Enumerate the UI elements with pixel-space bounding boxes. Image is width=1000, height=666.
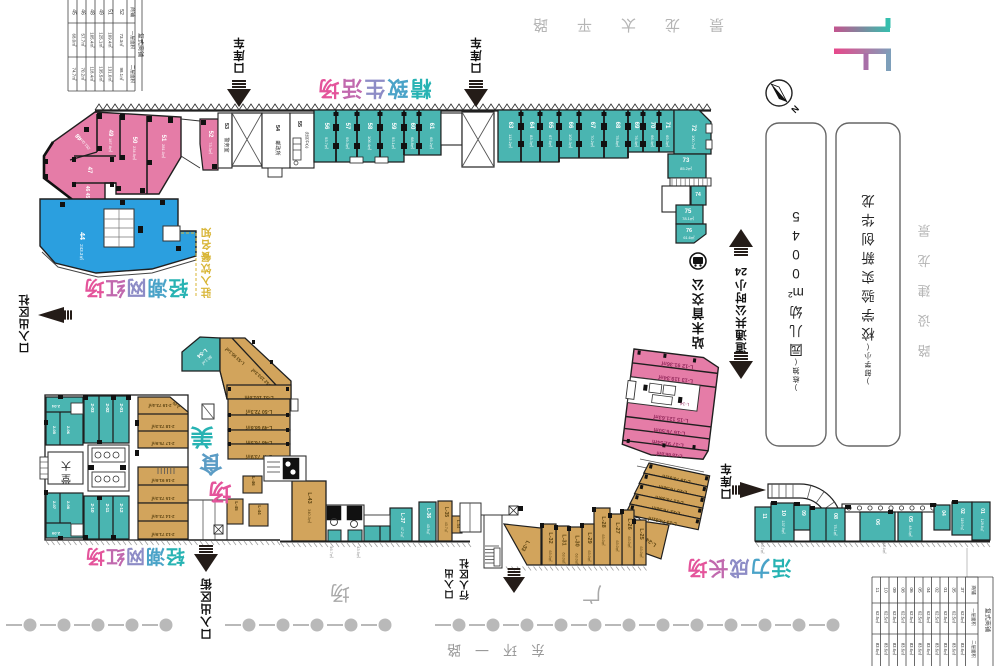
svg-text:49: 49 bbox=[98, 9, 104, 15]
svg-text:49: 49 bbox=[107, 130, 113, 137]
svg-text:45: 45 bbox=[71, 9, 77, 15]
svg-text:50: 50 bbox=[131, 137, 137, 144]
svg-text:83.6㎡: 83.6㎡ bbox=[884, 643, 890, 656]
svg-text:2-07: 2-07 bbox=[52, 501, 57, 510]
svg-text:区: 区 bbox=[19, 305, 30, 318]
svg-text:63: 63 bbox=[507, 122, 513, 129]
svg-text:71: 71 bbox=[664, 122, 670, 129]
svg-text:时: 时 bbox=[735, 291, 747, 305]
svg-text:4: 4 bbox=[792, 228, 800, 243]
svg-text:新: 新 bbox=[861, 250, 875, 265]
svg-text:交: 交 bbox=[691, 292, 704, 307]
svg-text:93.7㎡: 93.7㎡ bbox=[324, 137, 330, 149]
svg-text:62.5㎡: 62.5㎡ bbox=[926, 611, 932, 624]
svg-text:83.6㎡: 83.6㎡ bbox=[943, 643, 949, 656]
svg-text:46 45: 46 45 bbox=[84, 186, 90, 199]
svg-text:独: 独 bbox=[793, 367, 800, 376]
svg-text:轻潮网红场: 轻潮网红场 bbox=[84, 276, 189, 300]
svg-text:出: 出 bbox=[19, 317, 30, 331]
svg-text:L-25: L-25 bbox=[638, 528, 644, 539]
svg-text:2-04: 2-04 bbox=[51, 404, 60, 409]
svg-text:精致生活场: 精致生活场 bbox=[317, 76, 432, 100]
svg-text:37: 37 bbox=[959, 587, 965, 593]
svg-text:验: 验 bbox=[861, 288, 875, 303]
svg-text:公: 公 bbox=[691, 277, 704, 291]
svg-text:83.6㎡: 83.6㎡ bbox=[952, 643, 958, 656]
svg-text:06: 06 bbox=[874, 519, 880, 525]
svg-text:警务室: 警务室 bbox=[223, 137, 230, 152]
svg-text:龙: 龙 bbox=[861, 193, 875, 208]
svg-text:入: 入 bbox=[444, 578, 455, 589]
svg-text:135.5㎡: 135.5㎡ bbox=[99, 66, 105, 82]
svg-text:区: 区 bbox=[200, 590, 212, 603]
svg-text:02: 02 bbox=[934, 587, 940, 593]
svg-text:二层面积: 二层面积 bbox=[970, 640, 977, 658]
svg-text:首: 首 bbox=[691, 306, 704, 321]
svg-text:100.7㎡: 100.7㎡ bbox=[691, 135, 697, 149]
svg-text:54: 54 bbox=[274, 125, 280, 132]
svg-text:车: 车 bbox=[720, 462, 732, 476]
svg-text:L-28: L-28 bbox=[600, 516, 606, 527]
svg-text:70: 70 bbox=[649, 122, 655, 129]
svg-text:73: 73 bbox=[683, 158, 690, 164]
svg-text:63.0㎡: 63.0㎡ bbox=[639, 546, 644, 557]
svg-text:大: 大 bbox=[61, 459, 71, 472]
svg-text:06: 06 bbox=[908, 587, 914, 593]
svg-text:67: 67 bbox=[589, 122, 595, 129]
svg-text:52: 52 bbox=[118, 9, 124, 15]
svg-text:口: 口 bbox=[720, 487, 732, 500]
svg-text:83.6㎡: 83.6㎡ bbox=[918, 643, 924, 656]
svg-text:街: 街 bbox=[200, 577, 213, 591]
svg-text:106.4㎡: 106.4㎡ bbox=[367, 136, 373, 150]
svg-text:74: 74 bbox=[695, 192, 701, 198]
svg-text:43.7㎡: 43.7㎡ bbox=[444, 522, 449, 533]
svg-text:行: 行 bbox=[459, 589, 470, 601]
svg-text:幼: 幼 bbox=[789, 304, 803, 319]
svg-text:98.1㎡: 98.1㎡ bbox=[119, 68, 125, 82]
svg-text:113.2㎡: 113.2㎡ bbox=[508, 134, 514, 148]
svg-text:m²: m² bbox=[788, 285, 804, 300]
svg-text:59: 59 bbox=[390, 123, 396, 130]
svg-text:56: 56 bbox=[323, 123, 329, 130]
svg-text:末: 末 bbox=[691, 321, 705, 336]
svg-text:62.5㎡: 62.5㎡ bbox=[892, 611, 898, 624]
svg-text:68.0㎡: 68.0㎡ bbox=[72, 34, 78, 48]
svg-text:131.0㎡: 131.0㎡ bbox=[108, 66, 114, 82]
svg-text:L-44: L-44 bbox=[257, 505, 262, 515]
svg-text:83.6㎡: 83.6㎡ bbox=[875, 643, 881, 656]
svg-text:62.5㎡: 62.5㎡ bbox=[935, 611, 941, 624]
svg-text:通: 通 bbox=[735, 328, 747, 341]
svg-text:58: 58 bbox=[366, 123, 372, 130]
svg-text:小: 小 bbox=[865, 352, 872, 361]
svg-text:04: 04 bbox=[940, 510, 946, 516]
svg-text:2-08: 2-08 bbox=[66, 501, 71, 510]
svg-text:70.2㎡: 70.2㎡ bbox=[590, 135, 596, 147]
svg-text:园: 园 bbox=[789, 342, 803, 357]
svg-text:118.4㎡: 118.4㎡ bbox=[90, 66, 96, 82]
svg-text:邮政所: 邮政所 bbox=[274, 140, 281, 155]
svg-text:62.5㎡: 62.5㎡ bbox=[875, 611, 881, 624]
svg-text:轻潮网红场: 轻潮网红场 bbox=[85, 545, 185, 568]
svg-text:设: 设 bbox=[917, 313, 930, 328]
svg-text:社: 社 bbox=[19, 293, 31, 307]
svg-text:51: 51 bbox=[107, 9, 113, 15]
svg-text:): ) bbox=[795, 384, 797, 391]
svg-text:83.6㎡: 83.6㎡ bbox=[935, 643, 941, 656]
svg-text:餐: 餐 bbox=[200, 250, 212, 263]
svg-text:47: 47 bbox=[86, 167, 92, 174]
svg-text:83.6㎡: 83.6㎡ bbox=[909, 643, 915, 656]
svg-text:场: 场 bbox=[209, 479, 232, 505]
svg-text:48.4㎡: 48.4㎡ bbox=[908, 525, 913, 536]
svg-text:43.9㎡: 43.9㎡ bbox=[356, 546, 362, 558]
svg-text:234.5㎡: 234.5㎡ bbox=[132, 146, 138, 160]
svg-text:儿: 儿 bbox=[789, 323, 803, 338]
svg-text:119.9㎡: 119.9㎡ bbox=[960, 518, 965, 531]
svg-text:63.0㎡: 63.0㎡ bbox=[562, 552, 567, 563]
svg-text:口: 口 bbox=[470, 61, 482, 74]
svg-text:景: 景 bbox=[917, 223, 930, 238]
svg-text:70.2㎡: 70.2㎡ bbox=[81, 68, 87, 82]
svg-text:46: 46 bbox=[80, 9, 86, 15]
svg-text:商铺: 商铺 bbox=[129, 7, 136, 17]
svg-text:站: 站 bbox=[691, 335, 704, 350]
svg-text:35: 35 bbox=[951, 587, 957, 593]
svg-text:L-29: L-29 bbox=[586, 532, 592, 543]
svg-text:L-35: L-35 bbox=[443, 507, 449, 518]
svg-text:63.0㎡: 63.0㎡ bbox=[601, 534, 606, 545]
svg-text:2-18 73.3㎡: 2-18 73.3㎡ bbox=[151, 424, 175, 430]
svg-text:2-13 71.9㎡: 2-13 71.9㎡ bbox=[151, 532, 175, 538]
svg-text:109.4㎡: 109.4㎡ bbox=[108, 32, 114, 48]
svg-text:48: 48 bbox=[89, 9, 95, 15]
svg-text:2-05: 2-05 bbox=[52, 426, 57, 435]
svg-text:2-11: 2-11 bbox=[105, 504, 110, 513]
svg-text:62.5㎡: 62.5㎡ bbox=[918, 611, 924, 624]
svg-text:口: 口 bbox=[200, 627, 212, 640]
svg-text:0: 0 bbox=[792, 266, 800, 281]
svg-text:02: 02 bbox=[959, 508, 965, 514]
svg-text:一层面积: 一层面积 bbox=[970, 608, 977, 626]
svg-text:53: 53 bbox=[223, 123, 229, 129]
svg-text:L-50 72.3㎡: L-50 72.3㎡ bbox=[246, 408, 272, 415]
svg-text:74.7㎡: 74.7㎡ bbox=[72, 68, 78, 82]
svg-text:区: 区 bbox=[459, 568, 469, 579]
svg-text:龙: 龙 bbox=[917, 253, 930, 268]
svg-text:创: 创 bbox=[861, 231, 875, 246]
svg-text:65: 65 bbox=[547, 122, 553, 129]
svg-text:库: 库 bbox=[233, 49, 245, 63]
svg-text:187.6㎡: 187.6㎡ bbox=[108, 138, 114, 152]
svg-text:2-02: 2-02 bbox=[105, 403, 110, 413]
svg-text:广: 广 bbox=[582, 582, 602, 605]
svg-text:2-03: 2-03 bbox=[90, 403, 95, 413]
svg-text:入: 入 bbox=[200, 615, 212, 628]
svg-text:L-27: L-27 bbox=[614, 522, 620, 533]
svg-text:62.5㎡: 62.5㎡ bbox=[884, 611, 890, 624]
svg-text:L-30: L-30 bbox=[574, 535, 580, 546]
svg-text:场: 场 bbox=[330, 581, 350, 604]
svg-text:2-16 91.6㎡: 2-16 91.6㎡ bbox=[151, 478, 175, 484]
svg-text:公: 公 bbox=[735, 303, 747, 316]
svg-text:78.1㎡: 78.1㎡ bbox=[682, 215, 694, 221]
svg-text:52: 52 bbox=[207, 131, 213, 138]
svg-text:01: 01 bbox=[979, 508, 985, 514]
svg-text:04: 04 bbox=[925, 587, 931, 593]
svg-text:60: 60 bbox=[409, 123, 415, 130]
svg-text:入: 入 bbox=[19, 329, 30, 342]
svg-text:口: 口 bbox=[444, 588, 454, 599]
svg-text:83.6㎡: 83.6㎡ bbox=[960, 643, 966, 656]
svg-text:281.0㎡: 281.0㎡ bbox=[161, 144, 167, 158]
svg-text:85.2㎡: 85.2㎡ bbox=[680, 165, 692, 171]
svg-text:83.6㎡: 83.6㎡ bbox=[901, 643, 907, 656]
svg-text:63.0㎡: 63.0㎡ bbox=[548, 550, 553, 561]
svg-text:): ) bbox=[867, 377, 869, 384]
svg-text:口: 口 bbox=[233, 61, 245, 74]
svg-text:学: 学 bbox=[861, 307, 875, 322]
svg-text:L-36: L-36 bbox=[425, 508, 431, 519]
svg-text:51: 51 bbox=[160, 135, 166, 142]
svg-text:11: 11 bbox=[761, 513, 767, 519]
svg-text:63.0㎡: 63.0㎡ bbox=[575, 553, 580, 564]
svg-text:63.0㎡: 63.0㎡ bbox=[615, 540, 620, 551]
svg-text:2-09: 2-09 bbox=[51, 531, 60, 536]
svg-text:83.6㎡: 83.6㎡ bbox=[892, 643, 898, 656]
svg-text:2-19 73.4㎡: 2-19 73.4㎡ bbox=[148, 403, 172, 409]
svg-text:部: 部 bbox=[865, 369, 872, 378]
svg-text:64: 64 bbox=[528, 122, 534, 129]
svg-text:学: 学 bbox=[865, 360, 872, 369]
svg-text:2-14 73.4㎡: 2-14 73.4㎡ bbox=[151, 514, 175, 520]
svg-text:0: 0 bbox=[792, 247, 800, 262]
svg-text:活力成长场: 活力成长场 bbox=[687, 556, 792, 580]
svg-text:73.3㎡: 73.3㎡ bbox=[119, 34, 125, 48]
svg-text:L-32: L-32 bbox=[547, 532, 553, 543]
svg-text:华: 华 bbox=[861, 212, 875, 227]
svg-text:63.0㎡: 63.0㎡ bbox=[587, 550, 592, 561]
svg-text:美: 美 bbox=[191, 424, 214, 450]
svg-text:340.3㎡: 340.3㎡ bbox=[307, 509, 313, 523]
svg-text:东环一路: 东环一路 bbox=[433, 642, 545, 658]
svg-text:饮: 饮 bbox=[200, 262, 212, 275]
svg-text:路: 路 bbox=[917, 343, 930, 358]
svg-text:L-37: L-37 bbox=[399, 513, 405, 524]
svg-text:62.5㎡: 62.5㎡ bbox=[909, 611, 915, 624]
svg-text:09: 09 bbox=[891, 587, 897, 593]
svg-text:62.5㎡: 62.5㎡ bbox=[943, 611, 949, 624]
svg-text:44: 44 bbox=[78, 232, 85, 240]
svg-text:57.7㎡: 57.7㎡ bbox=[81, 34, 87, 48]
svg-text:83.6㎡: 83.6㎡ bbox=[926, 643, 932, 656]
svg-text:二层面积: 二层面积 bbox=[129, 65, 136, 84]
svg-text:(社区中心): (社区中心) bbox=[305, 132, 310, 149]
svg-text:243.3㎡: 243.3㎡ bbox=[79, 244, 85, 260]
svg-text:库: 库 bbox=[720, 475, 732, 489]
svg-text:76.4㎡: 76.4㎡ bbox=[634, 135, 640, 147]
svg-text:09: 09 bbox=[800, 510, 806, 516]
svg-text:L-26: L-26 bbox=[626, 518, 632, 529]
svg-text:66: 66 bbox=[567, 122, 573, 129]
svg-text:复式商铺: 复式商铺 bbox=[137, 33, 145, 57]
svg-text:08: 08 bbox=[900, 587, 906, 593]
svg-text:人: 人 bbox=[459, 578, 469, 590]
svg-text:社: 社 bbox=[459, 557, 470, 569]
svg-text:L-43: L-43 bbox=[306, 492, 312, 503]
svg-text:2-15 73.3㎡: 2-15 73.3㎡ bbox=[151, 496, 175, 502]
svg-text:103.3㎡: 103.3㎡ bbox=[568, 134, 574, 148]
svg-text:08: 08 bbox=[832, 513, 838, 519]
svg-text:43.9㎡: 43.9㎡ bbox=[426, 524, 431, 535]
svg-text:堂: 堂 bbox=[61, 472, 71, 484]
svg-text:75.8㎡: 75.8㎡ bbox=[615, 135, 621, 147]
svg-text:口: 口 bbox=[19, 341, 30, 354]
svg-text:62.5㎡: 62.5㎡ bbox=[901, 611, 907, 624]
svg-text:05: 05 bbox=[907, 516, 913, 522]
svg-text:2-06: 2-06 bbox=[66, 426, 71, 435]
svg-text:66.4㎡: 66.4㎡ bbox=[650, 135, 656, 147]
svg-text:小: 小 bbox=[735, 278, 748, 292]
svg-text:83.3㎡: 83.3㎡ bbox=[529, 135, 535, 147]
svg-text:01: 01 bbox=[942, 587, 948, 593]
svg-text:63.0㎡: 63.0㎡ bbox=[627, 536, 632, 547]
svg-text:入: 入 bbox=[200, 274, 211, 286]
svg-text:46.7㎡: 46.7㎡ bbox=[329, 546, 335, 558]
svg-text:2-10: 2-10 bbox=[90, 503, 95, 513]
svg-text:73.3㎡: 73.3㎡ bbox=[208, 142, 214, 154]
svg-text:62.5㎡: 62.5㎡ bbox=[952, 611, 958, 624]
svg-text:车: 车 bbox=[470, 36, 482, 50]
svg-text:出: 出 bbox=[444, 567, 454, 579]
svg-text:L-46: L-46 bbox=[251, 476, 256, 486]
svg-text:69: 69 bbox=[633, 122, 639, 129]
svg-text:05: 05 bbox=[917, 587, 923, 593]
svg-text:复式商铺: 复式商铺 bbox=[984, 608, 992, 632]
svg-text:10: 10 bbox=[883, 587, 889, 593]
svg-text:L-45: L-45 bbox=[234, 501, 239, 511]
svg-text:67.6㎡: 67.6㎡ bbox=[548, 135, 554, 147]
svg-text:出: 出 bbox=[200, 602, 212, 616]
svg-text:68: 68 bbox=[614, 122, 620, 129]
svg-text:125.1㎡: 125.1㎡ bbox=[99, 32, 105, 48]
svg-text:72: 72 bbox=[690, 125, 696, 132]
svg-text:75: 75 bbox=[685, 209, 692, 215]
svg-text:景龙太平路: 景龙太平路 bbox=[504, 16, 724, 33]
svg-text:名: 名 bbox=[201, 238, 212, 251]
svg-text:24: 24 bbox=[734, 265, 747, 277]
svg-text:68.8㎡: 68.8㎡ bbox=[410, 137, 416, 149]
svg-text:57: 57 bbox=[344, 123, 350, 130]
svg-text:驻: 驻 bbox=[200, 286, 211, 299]
svg-text:93.1㎡: 93.1㎡ bbox=[391, 137, 397, 149]
svg-text:校: 校 bbox=[861, 326, 875, 342]
svg-text:105.4㎡: 105.4㎡ bbox=[90, 32, 96, 48]
svg-text:55: 55 bbox=[296, 121, 302, 127]
svg-text:2-17 75.9㎡: 2-17 75.9㎡ bbox=[151, 441, 175, 447]
svg-text:76: 76 bbox=[686, 228, 692, 234]
svg-text:5: 5 bbox=[792, 209, 800, 224]
svg-text:75.1㎡: 75.1㎡ bbox=[833, 524, 838, 535]
svg-text:商铺: 商铺 bbox=[970, 585, 977, 595]
svg-text:11: 11 bbox=[874, 588, 880, 593]
svg-text:建: 建 bbox=[917, 283, 930, 298]
svg-text:2-01: 2-01 bbox=[119, 403, 124, 413]
svg-text:69.3㎡: 69.3㎡ bbox=[665, 135, 671, 147]
svg-text:车: 车 bbox=[233, 36, 245, 50]
svg-text:129.8㎡: 129.8㎡ bbox=[980, 519, 985, 532]
svg-text:10: 10 bbox=[780, 510, 786, 516]
svg-text:一层面积: 一层面积 bbox=[129, 31, 136, 50]
svg-text:库: 库 bbox=[470, 49, 482, 63]
svg-text:食: 食 bbox=[199, 451, 223, 477]
svg-text:栋: 栋 bbox=[793, 375, 800, 384]
svg-text:61.6㎡: 61.6㎡ bbox=[683, 235, 694, 240]
svg-text:65.2㎡: 65.2㎡ bbox=[429, 137, 435, 149]
svg-text:共: 共 bbox=[735, 316, 747, 330]
svg-text:45.6㎡: 45.6㎡ bbox=[882, 542, 887, 553]
svg-text:2-12: 2-12 bbox=[119, 503, 124, 513]
svg-text:实: 实 bbox=[861, 269, 875, 284]
svg-text:知: 知 bbox=[201, 226, 212, 239]
svg-text:137.9㎡: 137.9㎡ bbox=[781, 520, 786, 534]
svg-text:62.5㎡: 62.5㎡ bbox=[960, 611, 966, 624]
svg-text:61: 61 bbox=[428, 123, 434, 130]
svg-text:47.2㎡: 47.2㎡ bbox=[400, 527, 405, 538]
svg-text:99.3㎡: 99.3㎡ bbox=[345, 137, 351, 149]
svg-text:L-31: L-31 bbox=[561, 534, 567, 545]
